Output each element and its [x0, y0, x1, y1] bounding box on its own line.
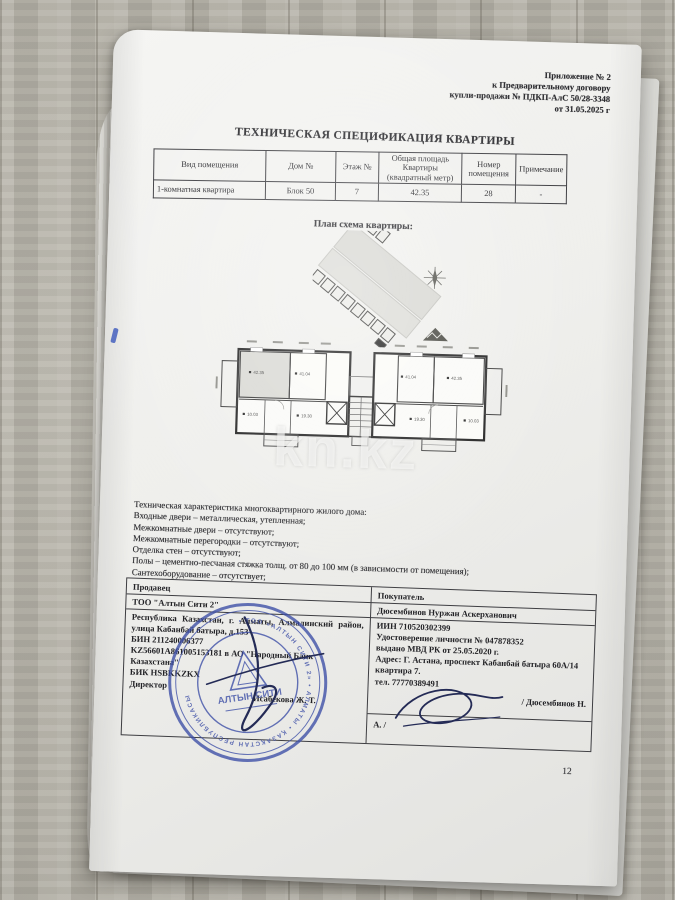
photo-of-document-on-wood: Приложение № 2 к Предварительному догово… [0, 0, 675, 900]
north-triangle-marker [423, 328, 448, 342]
spec-cell-number: 28 [461, 184, 515, 203]
watermark: kn.kz [217, 414, 475, 484]
spec-header-cell: Номер помещения [462, 153, 516, 185]
seller-signature [152, 587, 347, 773]
spec-header-cell: Примечание [516, 154, 567, 186]
spec-header-cell: Дом № [266, 151, 336, 183]
doc-header: Приложение № 2 к Предварительному догово… [350, 64, 611, 116]
room-area-label: 41.04 [299, 371, 311, 376]
spec-cell-note: - [515, 185, 566, 204]
shaded-room [239, 351, 290, 398]
spec-cell-room-type: 1-комнатная квартира [153, 180, 265, 200]
spec-cell-block: Блок 50 [265, 182, 335, 201]
room-area-label: 41.04 [405, 374, 417, 379]
site-plan-drawing [311, 229, 458, 349]
document-page: Приложение № 2 к Предварительному догово… [89, 29, 642, 886]
doc-title: ТЕХНИЧЕСКАЯ СПЕЦИФИКАЦИЯ КВАРТИРЫ [175, 124, 575, 150]
spec-cell-area: 42.35 [378, 183, 461, 202]
buyer-signature [383, 674, 515, 742]
page-number: 12 [562, 767, 572, 777]
room-area-label: 42.35 [253, 370, 265, 375]
spec-header-cell: Вид помещения [154, 149, 266, 182]
spec-table: Вид помещения Дом № Этаж № Общая площадь… [153, 148, 568, 204]
spec-header-cell: Общая площадь Квартиры (квадратный метр) [379, 152, 462, 184]
room-area-label: 42.35 [451, 376, 463, 381]
spec-cell-floor: 7 [335, 183, 378, 202]
spec-header-cell: Этаж № [336, 151, 379, 183]
